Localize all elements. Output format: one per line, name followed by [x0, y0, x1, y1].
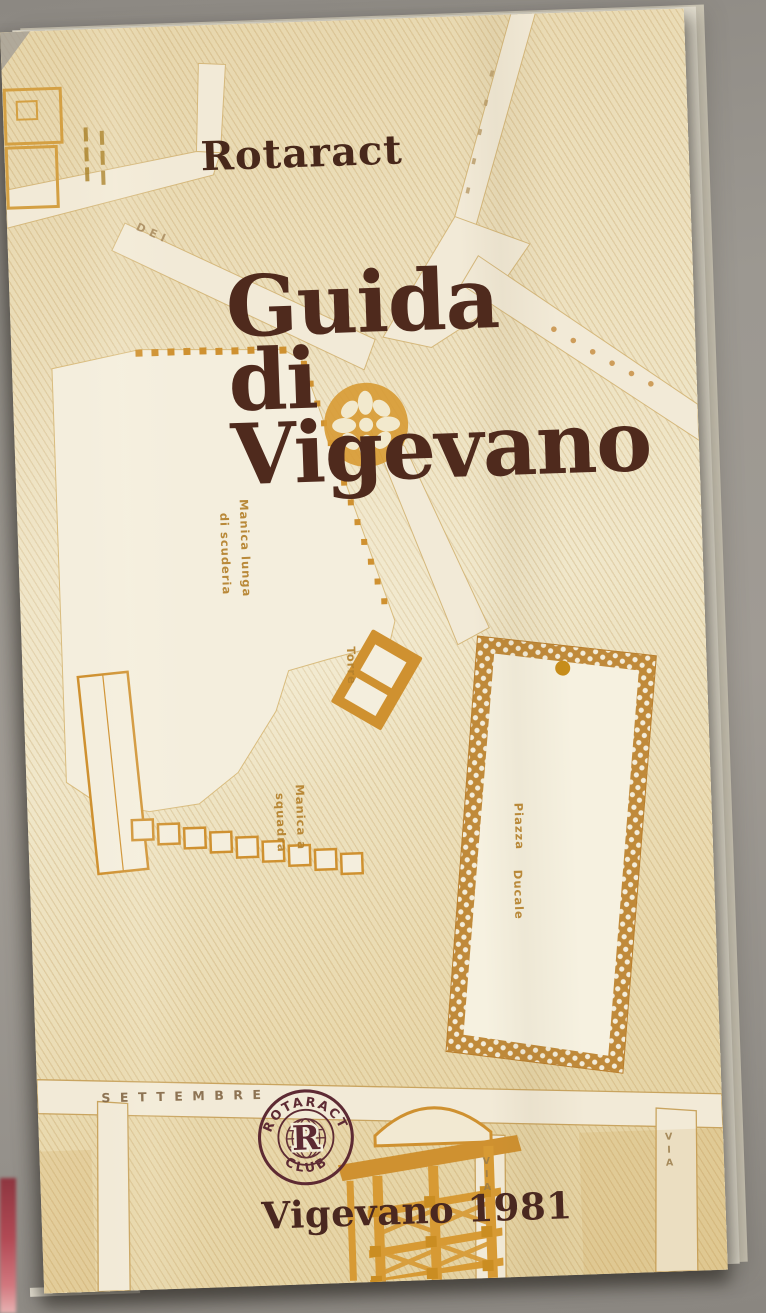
label-torre: Torre	[344, 646, 359, 685]
photo-background: Manica lunga di scuderia Torre Manica a …	[0, 0, 766, 1313]
label-piazza: Piazza	[511, 802, 527, 850]
book-title-line3: Vigevano	[230, 404, 652, 493]
publisher-name: Rotaract	[200, 126, 404, 180]
label-manica-squadra-line1: Manica a	[293, 784, 309, 850]
rotaract-club-logo: ROTARACT CLUB R	[253, 1085, 358, 1190]
label-manica-lunga-line2: di scuderia	[217, 513, 234, 596]
book-title: Guida di Vigevano	[225, 256, 653, 492]
label-manica-squadra-line2: squadra	[273, 793, 289, 853]
red-object-under-booklet	[0, 1178, 16, 1313]
logo-monogram: R	[291, 1117, 321, 1158]
label-ducale: Ducale	[511, 870, 527, 921]
label-street-via-right: VIA	[663, 1131, 675, 1170]
guidebook-cover: Manica lunga di scuderia Torre Manica a …	[0, 8, 728, 1293]
